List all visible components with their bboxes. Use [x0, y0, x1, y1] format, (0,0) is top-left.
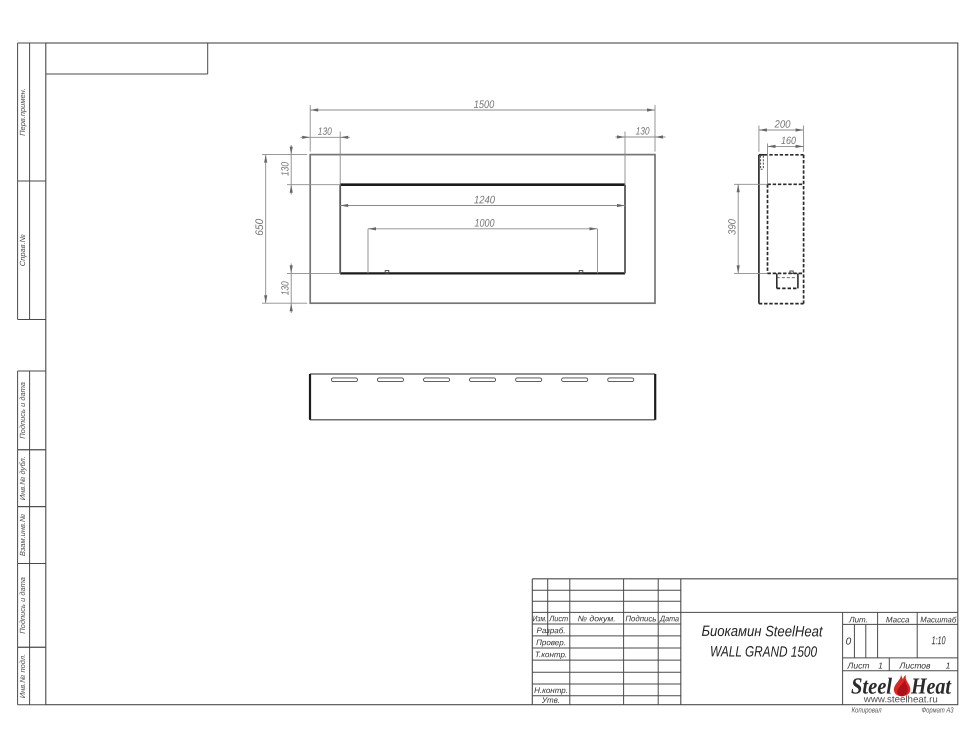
- svg-text:Инв.№ дубл.: Инв.№ дубл.: [18, 456, 27, 500]
- svg-text:1: 1: [878, 660, 883, 670]
- svg-text:Дата: Дата: [659, 614, 679, 623]
- svg-text:650: 650: [254, 218, 266, 236]
- svg-text:Листов: Листов: [899, 660, 932, 670]
- svg-text:Изм.: Изм.: [533, 614, 547, 623]
- svg-text:200: 200: [774, 119, 791, 131]
- svg-text:1:10: 1:10: [931, 635, 945, 647]
- svg-text:Разраб.: Разраб.: [537, 626, 566, 635]
- svg-text:Подпись и дата: Подпись и дата: [18, 577, 27, 634]
- svg-text:Н.контр.: Н.контр.: [534, 686, 568, 695]
- svg-text:130: 130: [280, 162, 292, 176]
- svg-text:0: 0: [846, 636, 852, 647]
- svg-text:Лит.: Лит.: [848, 615, 868, 624]
- svg-text:www.steelheat.ru: www.steelheat.ru: [863, 694, 938, 705]
- svg-text:130: 130: [318, 126, 332, 138]
- svg-text:Справ.№: Справ.№: [18, 234, 27, 266]
- svg-text:Лист: Лист: [847, 660, 870, 670]
- svg-text:130: 130: [636, 125, 650, 137]
- svg-text:1: 1: [946, 660, 951, 670]
- svg-text:Инв.№ подл.: Инв.№ подл.: [18, 654, 27, 698]
- svg-text:160: 160: [781, 135, 796, 147]
- svg-text:Подпись: Подпись: [625, 614, 656, 623]
- svg-text:Перв.примен.: Перв.примен.: [18, 88, 27, 136]
- svg-text:Утв.: Утв.: [541, 696, 560, 705]
- svg-text:Взам.инв.№: Взам.инв.№: [18, 514, 27, 556]
- svg-text:Т.контр.: Т.контр.: [535, 650, 567, 659]
- svg-text:1240: 1240: [474, 194, 496, 206]
- svg-text:130: 130: [280, 281, 292, 295]
- svg-text:Копировал: Копировал: [851, 705, 882, 714]
- svg-text:Формат А3: Формат А3: [921, 705, 954, 714]
- svg-text:Подпись и дата: Подпись и дата: [18, 382, 27, 439]
- svg-text:1000: 1000: [474, 218, 495, 230]
- svg-text:1500: 1500: [474, 99, 495, 111]
- svg-text:№ докум.: № докум.: [578, 614, 616, 623]
- svg-text:Провер.: Провер.: [536, 638, 566, 647]
- svg-text:Биокамин SteelHeat: Биокамин SteelHeat: [701, 623, 823, 641]
- svg-text:WALL GRAND 1500: WALL GRAND 1500: [710, 643, 818, 660]
- svg-text:390: 390: [727, 219, 739, 235]
- svg-text:Масса: Масса: [886, 615, 910, 624]
- svg-text:Лист: Лист: [548, 614, 568, 623]
- svg-text:Масштаб: Масштаб: [920, 615, 957, 624]
